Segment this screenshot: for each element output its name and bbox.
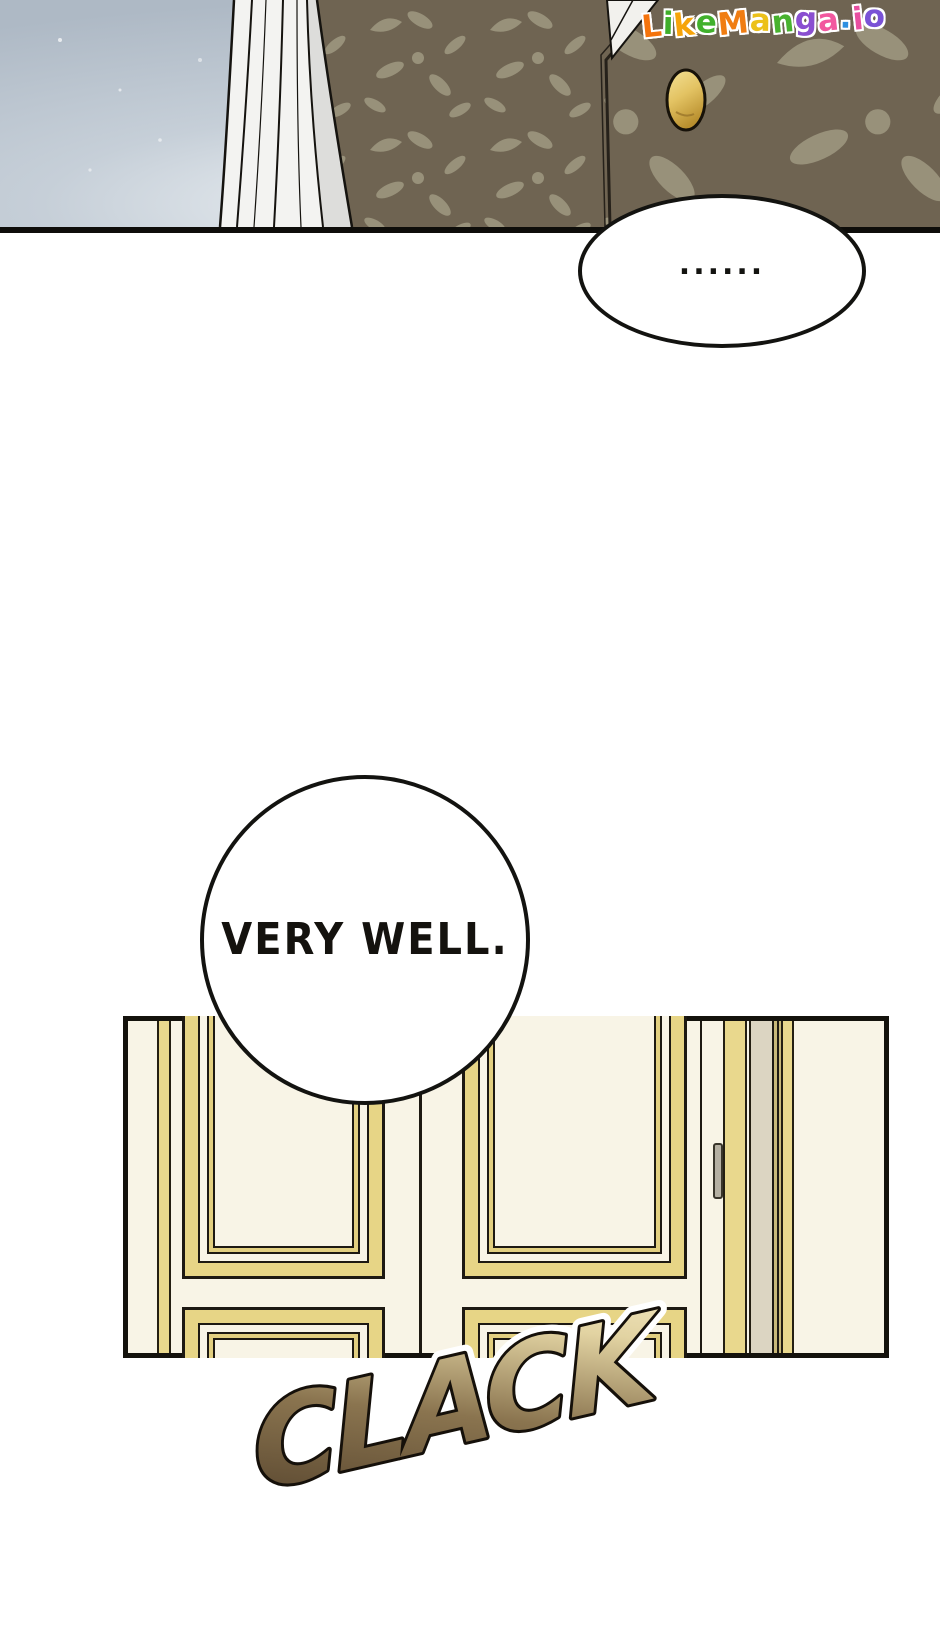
door-molding-stripe xyxy=(781,1021,794,1353)
speech-bubble-very-well: VERY WELL. xyxy=(200,775,530,1105)
sfx-clack: CLACK CLACK xyxy=(240,1235,740,1535)
door-frame-lines xyxy=(772,1021,781,1353)
gold-button xyxy=(667,70,705,130)
silence-text: ...... xyxy=(679,247,765,282)
very-well-text: VERY WELL. xyxy=(221,915,508,965)
door-jamb-band xyxy=(749,1021,772,1353)
watermark: LikeManga.io xyxy=(641,0,923,61)
speech-bubble-silence: ...... xyxy=(578,194,866,348)
door-handle xyxy=(713,1143,723,1199)
door-molding-stripe xyxy=(157,1021,171,1353)
sfx-clack-text: CLACK xyxy=(248,1285,669,1518)
